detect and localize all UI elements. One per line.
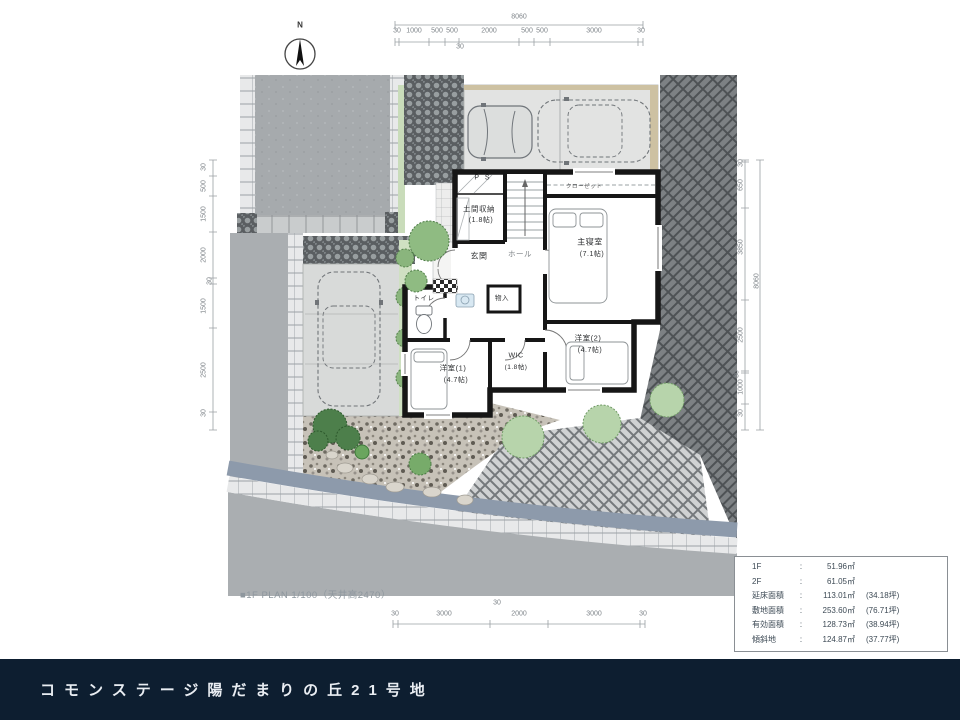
table-cell-colon: : <box>797 618 805 633</box>
dim-label-total-top: 8060 <box>511 14 527 21</box>
north-arrow-icon <box>285 39 315 69</box>
dim-label: 30 <box>639 611 647 618</box>
room-size-wic: (1.8帖) <box>505 361 528 371</box>
driveway-apron <box>255 215 390 233</box>
table-cell-tsubo: (34.18坪) <box>866 589 899 604</box>
parking-pad-top <box>464 85 658 172</box>
vanity-icon <box>456 294 474 307</box>
table-cell-colon: : <box>797 589 805 604</box>
dim-label: 2000 <box>511 611 527 618</box>
room-label-ps: P S <box>474 175 491 182</box>
dim-label: 650 <box>738 179 745 191</box>
footer-title: コモンステージ陽だまりの丘21号地 <box>40 679 434 700</box>
table-cell-value: 113.01㎡ <box>805 589 855 604</box>
table-cell-tsubo: (76.71坪) <box>866 604 899 619</box>
table-cell-colon: : <box>797 633 805 648</box>
dim-label: 1500 <box>201 298 208 314</box>
dim-label: 30 <box>393 28 401 35</box>
table-cell-value: 51.96㎡ <box>805 560 855 575</box>
dim-label: 3000 <box>586 28 602 35</box>
area-table: 1F : 51.96㎡ 2F : 61.05㎡ 延床面積 : 113.01㎡ (… <box>734 556 948 652</box>
table-cell-tsubo: (37.77坪) <box>866 633 899 648</box>
dim-label: 30 <box>456 44 464 51</box>
left-road <box>230 233 303 478</box>
dim-label: 2500 <box>738 327 745 343</box>
room-size-doma: (1.8帖) <box>469 215 493 225</box>
building <box>401 168 662 419</box>
plan-caption: ■1F PLAN 1/100（天井高2470） <box>240 587 391 601</box>
stairs <box>506 174 544 240</box>
table-cell-label: 延床面積 <box>735 589 797 604</box>
dim-label: 30 <box>738 159 745 167</box>
dim-label: 500 <box>521 28 533 35</box>
room-label-hall: ホール <box>508 249 532 260</box>
tree-icon <box>405 270 427 292</box>
room-label-wic: WIC <box>508 353 523 360</box>
dim-label: 2000 <box>201 247 208 263</box>
dim-label: 30 <box>201 409 208 417</box>
dim-label: 30 <box>201 163 208 171</box>
dim-label: 30 <box>493 600 501 607</box>
table-cell-colon: : <box>797 604 805 619</box>
dim-label: 500 <box>446 28 458 35</box>
footer-bar: コモンステージ陽だまりの丘21号地 <box>0 659 960 720</box>
dim-label: 3000 <box>436 611 452 618</box>
dim-label: 3850 <box>738 239 745 255</box>
table-cell-label: 傾斜地 <box>735 633 797 648</box>
room-label-west2: 洋室(2) <box>575 333 602 344</box>
floor-plan-page: N 8060 30 1000 500 500 2000 500 500 3000… <box>0 0 960 720</box>
shrub-icon <box>409 453 431 475</box>
dim-label: 30 <box>734 370 741 378</box>
dim-label: 1000 <box>406 28 422 35</box>
table-cell-value: 124.87㎡ <box>805 633 855 648</box>
dim-label: 3000 <box>586 611 602 618</box>
table-cell-colon: : <box>797 575 805 590</box>
room-size-west1: (4.7帖) <box>444 375 468 385</box>
dim-label: 500 <box>201 180 208 192</box>
drain-pad <box>237 213 257 233</box>
room-label-doma: 土間収納 <box>463 204 495 215</box>
north-label: N <box>297 21 303 30</box>
sidewalk-tiles <box>288 233 303 475</box>
table-row: 1F : 51.96㎡ <box>735 560 947 575</box>
table-row: 傾斜地 : 124.87㎡ (37.77坪) <box>735 633 947 648</box>
room-label-monoire: 物入 <box>495 292 509 302</box>
dim-label-total-right: 8060 <box>754 273 761 289</box>
room-label-closet: クローゼット <box>566 182 602 190</box>
room-label-master: 主寝室 <box>577 237 603 248</box>
toilet-icon <box>416 306 432 334</box>
room-size-master: (7.1帖) <box>580 249 604 259</box>
car-icon <box>468 103 532 161</box>
table-cell-tsubo: (38.94坪) <box>866 618 899 633</box>
table-row: 敷地面積 : 253.60㎡ (76.71坪) <box>735 604 947 619</box>
table-row: 有効面積 : 128.73㎡ (38.94坪) <box>735 618 947 633</box>
dim-label: 500 <box>431 28 443 35</box>
shrub-icon <box>355 445 369 459</box>
table-row: 延床面積 : 113.01㎡ (34.18坪) <box>735 589 947 604</box>
dim-label: 30 <box>637 28 645 35</box>
dim-label: 1000 <box>738 379 745 395</box>
table-cell-value: 128.73㎡ <box>805 618 855 633</box>
table-cell-colon: : <box>797 560 805 575</box>
tiled-floor <box>433 279 457 293</box>
dim-label: 30 <box>738 409 745 417</box>
table-cell-label: 敷地面積 <box>735 604 797 619</box>
dim-label: 2000 <box>481 28 497 35</box>
dim-label: 500 <box>536 28 548 35</box>
table-cell-value: 61.05㎡ <box>805 575 855 590</box>
parking-pad-left <box>303 236 416 416</box>
room-label-genkan: 玄関 <box>471 251 488 262</box>
table-cell-label: 1F <box>735 560 797 575</box>
bed-icon <box>411 349 447 409</box>
sidewalk-tiles <box>240 75 255 215</box>
dim-label: 1500 <box>201 206 208 222</box>
table-cell-value: 253.60㎡ <box>805 604 855 619</box>
room-label-toilet: トイレ <box>414 292 435 302</box>
table-cell-label: 2F <box>735 575 797 590</box>
table-row: 2F : 61.05㎡ <box>735 575 947 590</box>
table-cell-label: 有効面積 <box>735 618 797 633</box>
dim-label: 30 <box>207 277 214 285</box>
tree-icon <box>409 221 449 261</box>
dim-label: 30 <box>391 611 399 618</box>
room-size-west2: (4.7帖) <box>578 345 602 355</box>
dim-label: 2500 <box>201 362 208 378</box>
room-label-west1: 洋室(1) <box>440 363 467 374</box>
top-left-road <box>237 75 404 233</box>
